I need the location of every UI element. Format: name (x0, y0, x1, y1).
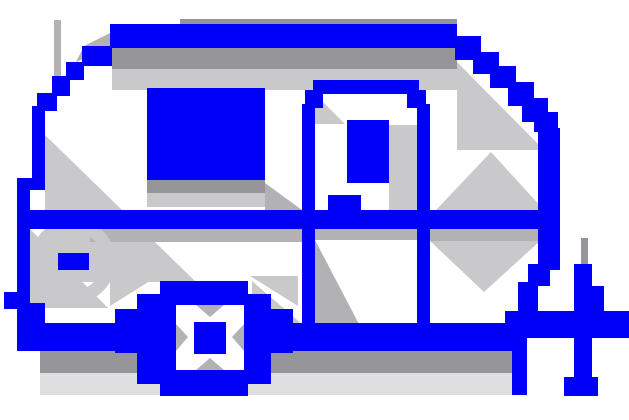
jack-post-lower (574, 338, 592, 380)
shadow-under-chassis-dark (40, 351, 518, 373)
shadow-door-lower-wedge (315, 240, 360, 326)
shadow-under-roof-dark (112, 48, 457, 69)
icon-canvas (0, 0, 629, 420)
body-left-foot (17, 303, 45, 325)
jack-post-upper (574, 264, 592, 312)
roof-bar (110, 24, 457, 48)
roof-step-left-1 (82, 46, 112, 66)
door-window (347, 120, 389, 183)
camper-trailer-icon (0, 0, 629, 420)
hitch-bar (505, 311, 629, 338)
shadow-under-chassis-light (40, 373, 518, 395)
door-frame-right (417, 104, 430, 326)
shadow-jack-line (581, 238, 588, 266)
window-main (147, 88, 265, 180)
body-left-edge-upper (32, 106, 45, 188)
shadow-rail-x-upper (436, 152, 544, 210)
jack-crank (590, 286, 604, 313)
door-top (313, 80, 419, 94)
shadow-window-door-wedge (265, 183, 302, 210)
body-left-bump (4, 292, 18, 309)
body-left-edge-lower (17, 184, 30, 310)
door-handle (328, 195, 361, 211)
shadow-under-rail-right (430, 229, 538, 241)
belt-rail (28, 210, 560, 229)
rear-support-leg (512, 338, 527, 395)
body-right-edge (538, 128, 560, 270)
shadow-under-rail-door (315, 229, 417, 240)
wheel-hub-center (194, 322, 226, 354)
jack-foot (564, 377, 598, 396)
shadow-window-sill-dark (147, 180, 265, 193)
shadow-under-rail-left (90, 229, 302, 242)
door-frame-left (302, 104, 315, 326)
shadow-window-sill-light (147, 193, 265, 207)
body-right-step-2 (518, 282, 538, 312)
side-badge (58, 253, 89, 270)
